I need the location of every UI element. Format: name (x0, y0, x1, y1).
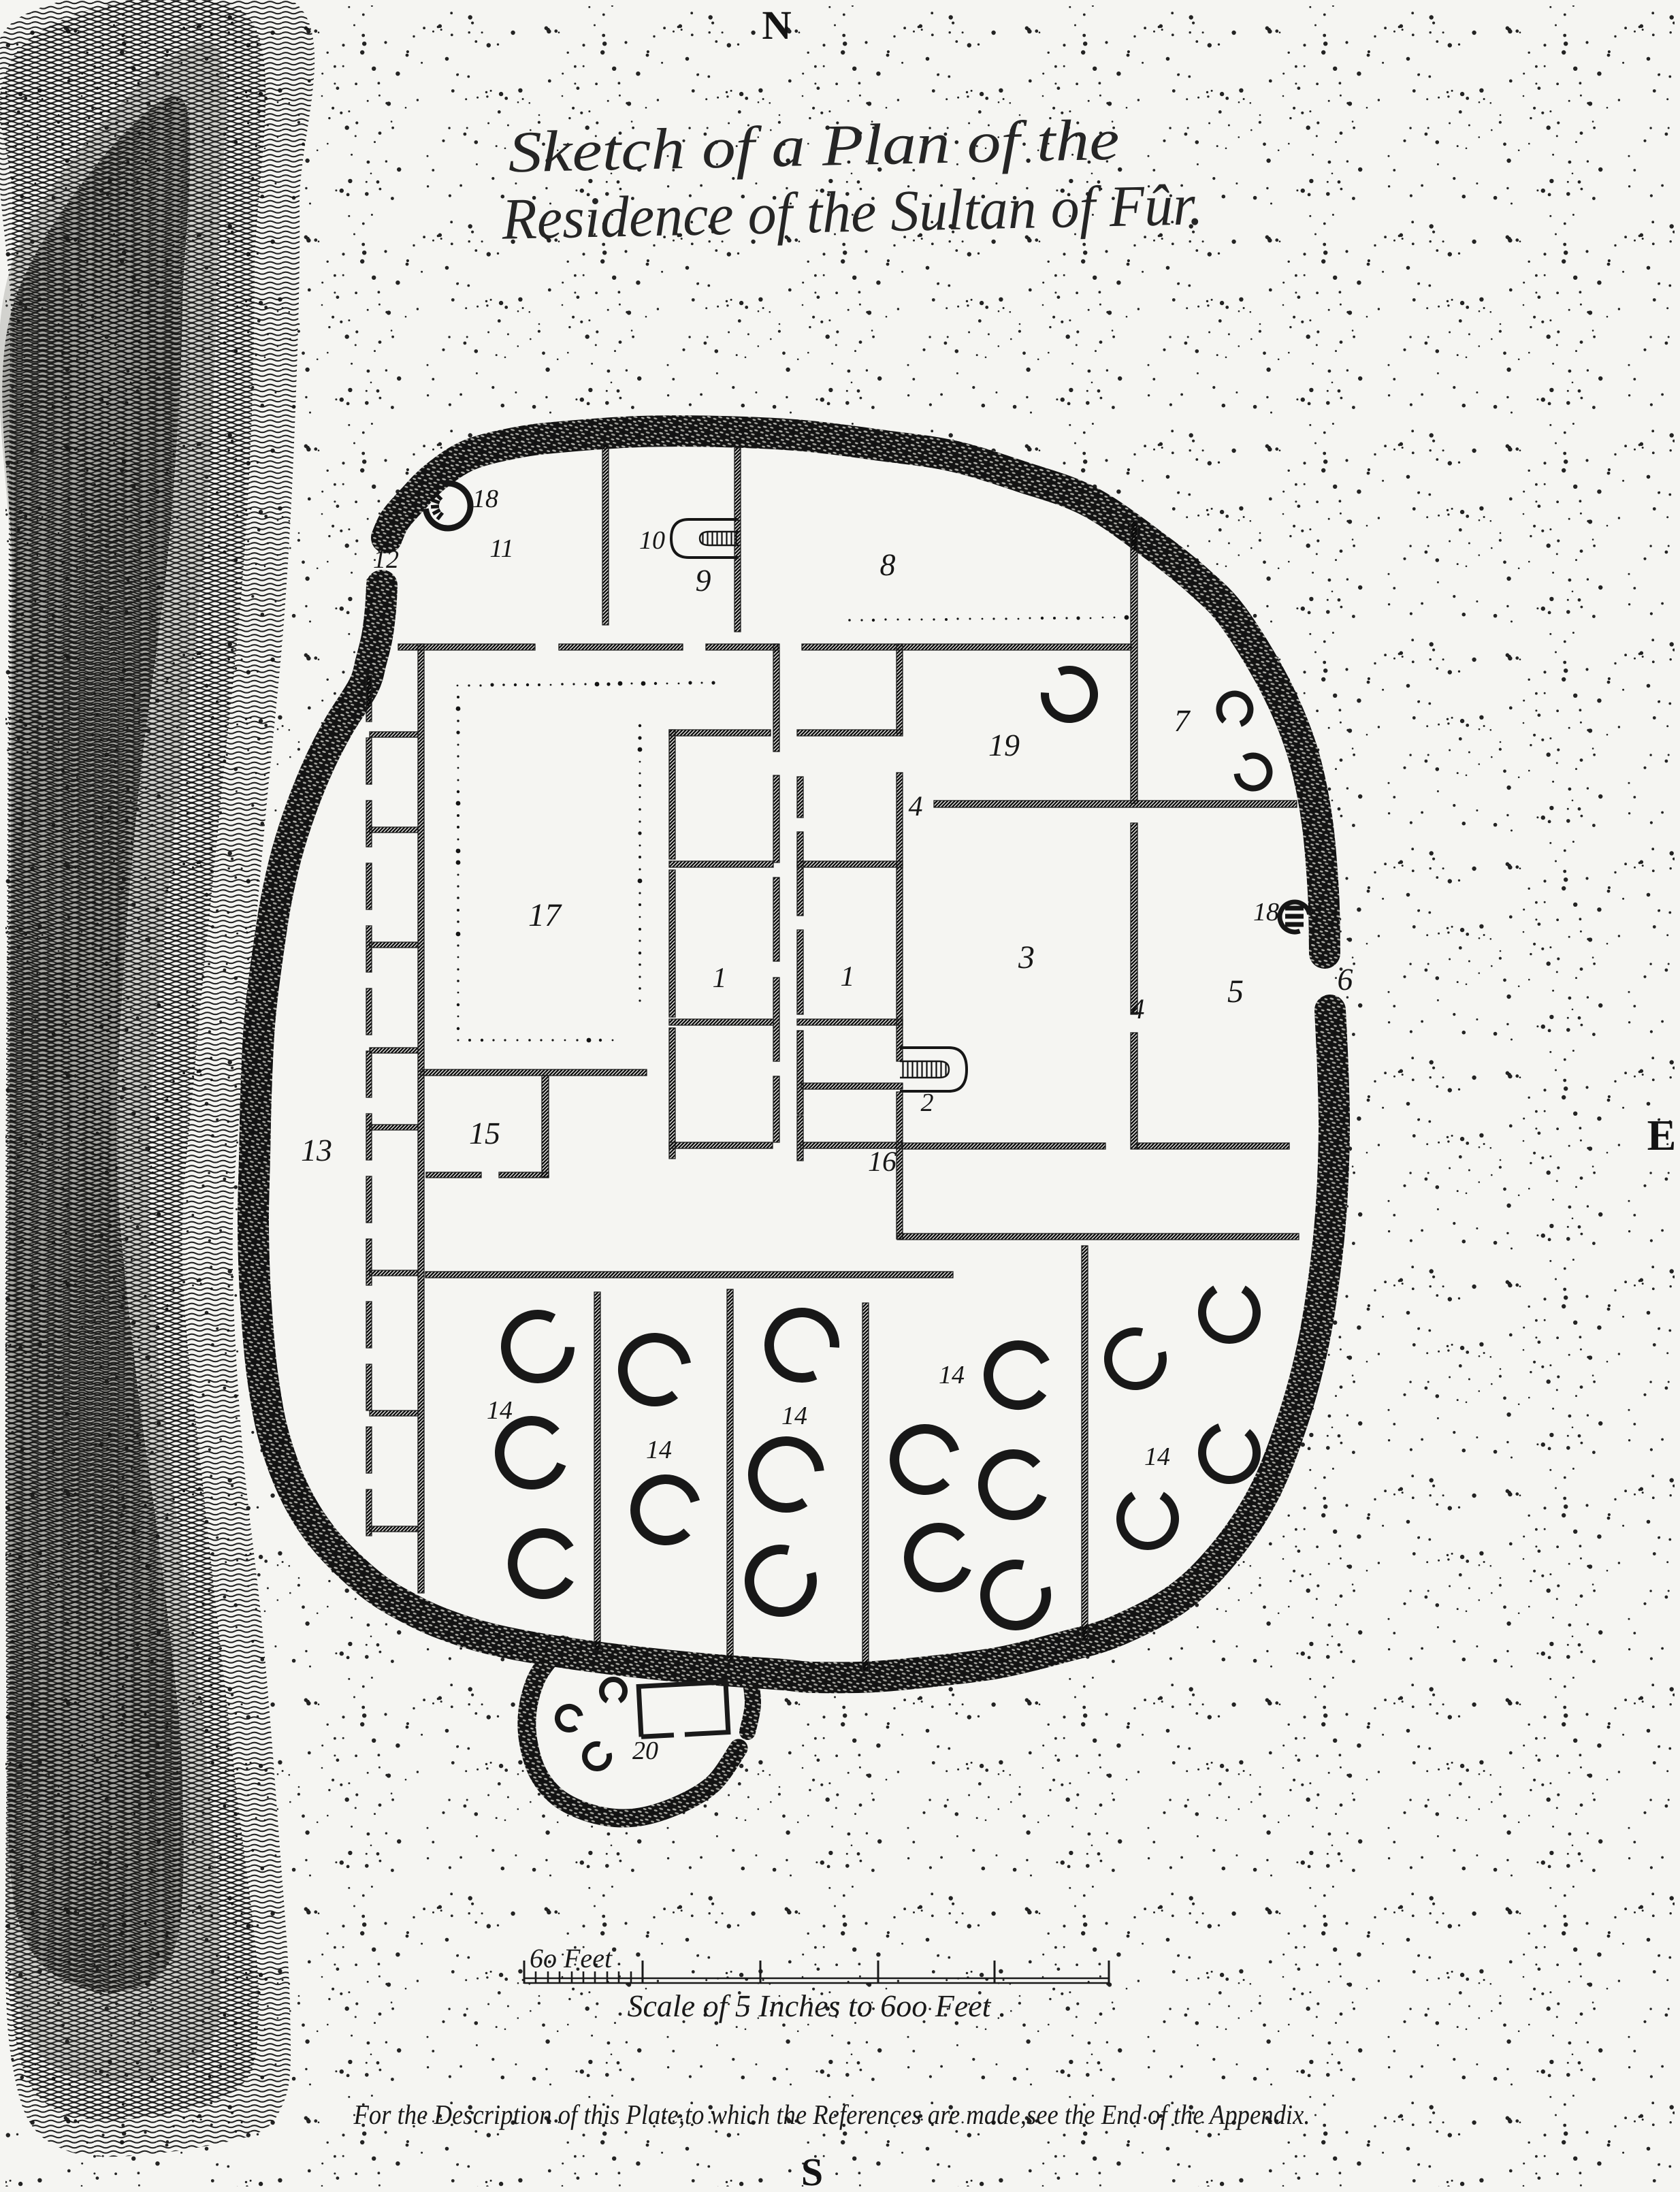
svg-text:6: 6 (1338, 962, 1353, 997)
svg-text:For the Description of this Pl: For the Description of this Plate,to whi… (353, 2099, 1310, 2130)
svg-text:1: 1 (713, 963, 727, 994)
svg-text:5: 5 (1227, 973, 1244, 1010)
svg-text:S: S (801, 2150, 823, 2192)
svg-text:N: N (762, 3, 791, 48)
svg-text:19: 19 (988, 728, 1020, 762)
svg-text:16: 16 (868, 1146, 896, 1178)
svg-text:13: 13 (301, 1133, 332, 1167)
svg-text:12: 12 (373, 545, 399, 574)
svg-text:1: 1 (841, 961, 855, 993)
svg-text:18: 18 (1253, 898, 1279, 926)
svg-text:6o Feet: 6o Feet (530, 1943, 613, 1973)
svg-text:15: 15 (469, 1116, 500, 1150)
svg-text:9: 9 (696, 563, 711, 598)
svg-text:20: 20 (632, 1737, 658, 1765)
svg-text:E: E (1647, 1111, 1677, 1159)
svg-text:11: 11 (489, 534, 513, 563)
svg-text:8: 8 (880, 547, 896, 582)
svg-text:7: 7 (1174, 703, 1191, 738)
svg-text:4: 4 (909, 791, 923, 822)
svg-text:Sketch of a Plan of the: Sketch of a Plan of the (507, 107, 1120, 185)
svg-text:17: 17 (528, 897, 562, 933)
svg-text:2: 2 (921, 1089, 934, 1117)
svg-text:10: 10 (639, 526, 665, 555)
svg-text:18: 18 (472, 485, 498, 513)
svg-text:14: 14 (1144, 1442, 1170, 1471)
svg-text:14: 14 (781, 1402, 807, 1430)
svg-text:4: 4 (1131, 994, 1145, 1025)
svg-text:3: 3 (1018, 939, 1035, 976)
svg-text:14: 14 (939, 1361, 965, 1389)
svg-text:Scale of 5 Inches to 6oo Feet: Scale of 5 Inches to 6oo Feet . (628, 1988, 1007, 2023)
svg-text:14: 14 (487, 1396, 513, 1425)
svg-text:14: 14 (646, 1436, 672, 1464)
